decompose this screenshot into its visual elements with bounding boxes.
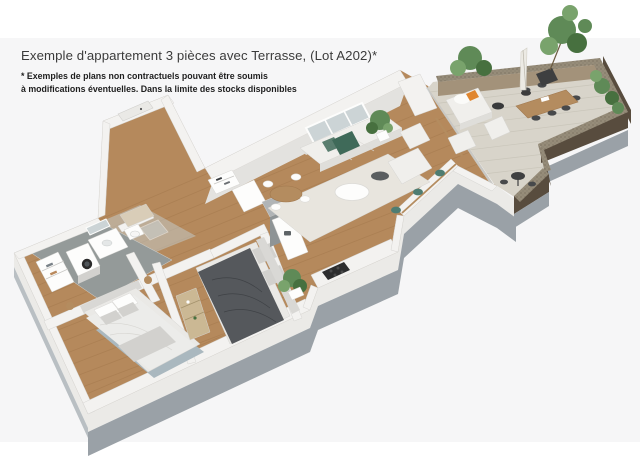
nightstand-left <box>66 302 74 310</box>
sink <box>284 231 291 236</box>
door-handle <box>140 108 142 110</box>
disclaimer: * Exemples de plans non contractuels pou… <box>21 70 377 96</box>
nightstand-right <box>144 276 152 284</box>
disclaimer-line-1: * Exemples de plans non contractuels pou… <box>21 70 377 83</box>
coffee-table <box>335 184 369 201</box>
page-title: Exemple d'appartement 3 pièces avec Terr… <box>21 48 377 63</box>
caption-block: Exemple d'appartement 3 pièces avec Terr… <box>21 48 377 96</box>
screenshot-root: Exemple d'appartement 3 pièces avec Terr… <box>0 0 640 470</box>
side-table-dark <box>492 103 504 110</box>
side-table <box>371 172 389 181</box>
bistro-chair <box>528 182 536 187</box>
bistro-chair <box>500 180 508 185</box>
disclaimer-line-2: à modifications éventuelles. Dans la lim… <box>21 83 377 96</box>
